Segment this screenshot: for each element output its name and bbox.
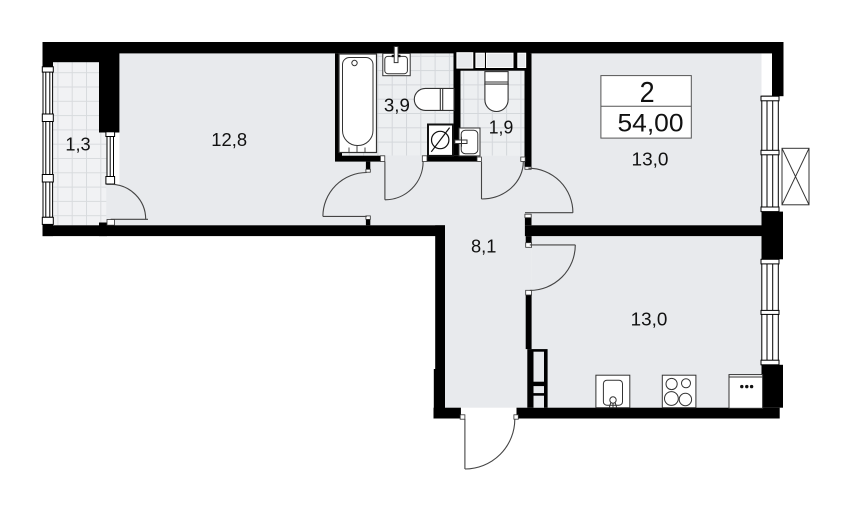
svg-text:13,0: 13,0	[631, 309, 668, 330]
svg-text:8,1: 8,1	[471, 235, 496, 256]
svg-text:12,8: 12,8	[211, 129, 247, 150]
svg-text:1,9: 1,9	[489, 116, 514, 137]
svg-text:13,0: 13,0	[632, 148, 669, 169]
svg-text:1,3: 1,3	[65, 134, 90, 155]
svg-text:2: 2	[640, 77, 655, 109]
svg-text:3,9: 3,9	[384, 94, 410, 115]
svg-text:54,00: 54,00	[618, 110, 684, 138]
